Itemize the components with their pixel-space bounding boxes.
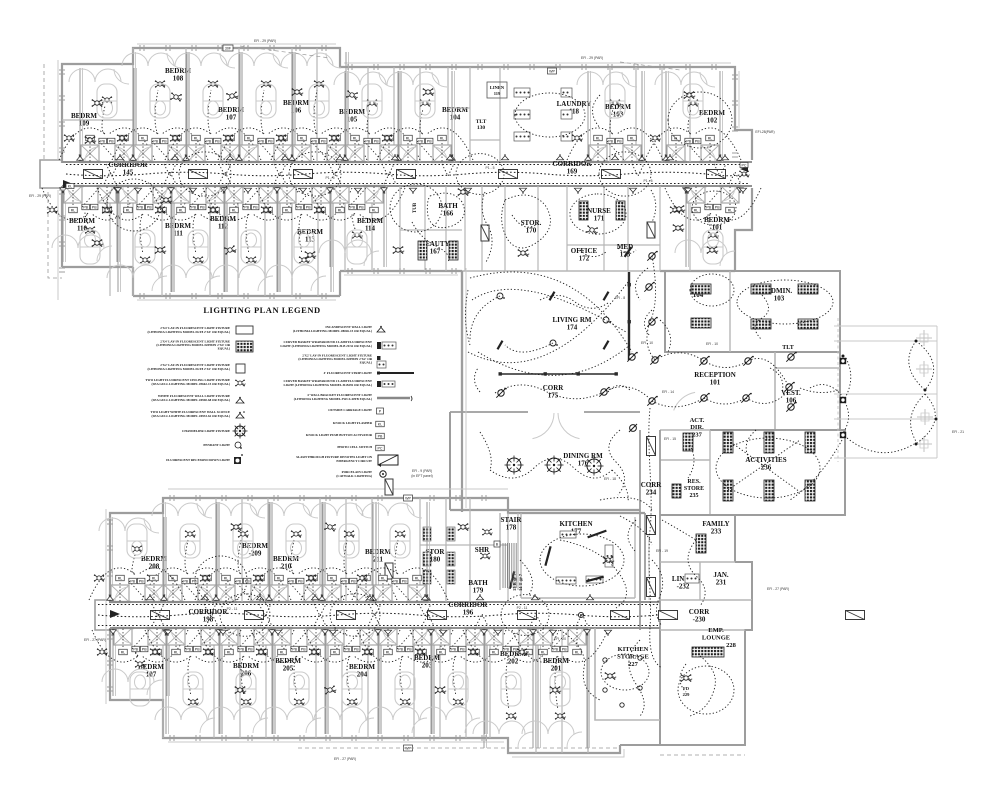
svg-text:PB: PB [183,580,188,584]
svg-text:PB: PB [686,140,691,144]
svg-text:RL: RL [179,209,184,213]
svg-text:PB: PB [460,648,465,652]
svg-text:RL: RL [338,209,343,213]
svg-text:(SEA GULL LIGHTING MODEL #5662: (SEA GULL LIGHTING MODEL #5662-15 OR EQU… [152,382,230,386]
svg-text:PB: PB [345,648,350,652]
svg-text:PB: PB [617,140,622,144]
svg-text:PB: PB [259,140,264,144]
svg-text:PB: PB [83,206,88,210]
svg-text:PB: PB [298,580,303,584]
svg-text:110: 110 [77,224,88,232]
svg-text:102: 102 [707,116,718,124]
svg-text:PB: PB [342,580,347,584]
svg-text:LOUNGE: LOUNGE [702,635,730,642]
svg-text:PB: PB [562,648,567,652]
svg-text:LINEN: LINEN [490,85,505,90]
svg-text:(in EFT panel): (in EFT panel) [411,474,432,478]
svg-text:PB: PB [292,648,297,652]
svg-text:PB: PB [301,648,306,652]
svg-text:EQUAL): EQUAL) [360,361,372,365]
svg-text:14 T @ 7: 14 T @ 7 [518,573,523,591]
svg-text:15 R @ 7: 15 R @ 7 [512,573,517,591]
svg-text:KL: KL [68,185,72,189]
svg-text:P2 - 11: P2 - 11 [227,607,238,611]
svg-text:RL: RL [121,651,126,655]
svg-text:CHANDELIER LIGHT FIXTURE: CHANDELIER LIGHT FIXTURE [182,429,230,433]
svg-text:108: 108 [173,74,184,82]
svg-text:P2 - 11: P2 - 11 [517,606,528,610]
svg-text:PB: PB [248,648,253,652]
svg-text:WP: WP [405,497,411,501]
svg-text:ACT.: ACT. [690,417,705,424]
svg-text:PB: PB [393,580,398,584]
svg-text:PB: PB [236,580,241,584]
svg-text:PB: PB [92,206,97,210]
svg-text:EFI - 19: EFI - 19 [656,549,668,553]
svg-text:PB: PB [706,206,711,210]
svg-text:PHOTO CELL SWITCH: PHOTO CELL SWITCH [337,445,372,449]
svg-text:PB: PB [186,648,191,652]
svg-text:229: 229 [683,692,691,697]
svg-text:EFI - 29 (PAR): EFI - 29 (PAR) [581,56,603,60]
svg-text:103: 103 [613,110,624,118]
svg-text:-232: -232 [677,582,690,590]
svg-text:PB: PB [354,648,359,652]
svg-text:EFI - 18: EFI - 18 [604,477,616,481]
svg-text:RL: RL [333,651,338,655]
svg-text:PB: PB [142,648,147,652]
svg-text:LIGHTING PLAN LEGEND: LIGHTING PLAN LEGEND [203,305,320,315]
svg-text:FD: FD [683,686,690,691]
svg-text:PB: PB [297,206,302,210]
svg-text:RL: RL [227,651,232,655]
svg-text:RL: RL [440,137,445,141]
svg-text:PB: PB [245,580,250,584]
svg-text:167: 167 [430,247,441,255]
svg-text:PENDANT LIGHT: PENDANT LIGHT [203,443,230,447]
svg-text:PB: PB [553,648,558,652]
svg-text:KL: KL [378,423,382,427]
svg-text:PB: PB [312,140,317,144]
svg-text:PB: PB [244,206,249,210]
svg-text:PB: PB [147,206,152,210]
svg-text:PB: PB [289,580,294,584]
svg-text:FLUORESCENT RECESSED DOWN LIGH: FLUORESCENT RECESSED DOWN LIGHT [166,458,231,462]
svg-text:210: 210 [281,562,292,570]
svg-text:(LITHONIA LIGHTING MODEL #8026: (LITHONIA LIGHTING MODEL #8026-15 OR EQU… [293,329,372,333]
svg-text:103: 103 [774,294,785,302]
svg-text:PB: PB [398,648,403,652]
svg-text:171: 171 [594,214,605,222]
svg-text:RL: RL [728,209,733,213]
svg-text:4' FLUORESCENT STRIP LIGHT: 4' FLUORESCENT STRIP LIGHT [324,371,373,375]
svg-text:RL: RL [330,577,335,581]
svg-text:PB: PB [138,206,143,210]
svg-text:201: 201 [551,664,562,672]
svg-text:(LITHONIA LIGHTING MODEL #WC4-: (LITHONIA LIGHTING MODEL #WC4-40TB EQUAL… [294,397,372,401]
svg-text:196: 196 [463,608,474,616]
svg-text:RL: RL [630,137,635,141]
svg-text:(SEA GULL LIGHTING MODEL #4940: (SEA GULL LIGHTING MODEL #4940-68 OR EQU… [152,398,230,402]
svg-text:PB: PB [427,140,432,144]
svg-text:RL: RL [152,577,157,581]
svg-text:RL: RL [224,577,229,581]
svg-text:RL: RL [372,209,377,213]
svg-text:RL: RL [300,137,305,141]
svg-text:RL: RL [118,577,123,581]
svg-text:PB: PB [153,140,158,144]
svg-text:(LITHONIA LIGHTING MODEL #GT8: (LITHONIA LIGHTING MODEL #GT8 2'X2' OR E… [147,367,230,371]
svg-text:174: 174 [567,323,578,331]
svg-text:P1 - 5: P1 - 5 [325,176,334,180]
svg-text:RL: RL [386,651,391,655]
svg-text:PB: PB [253,206,258,210]
svg-text:130: 130 [477,125,486,131]
svg-text:RL: RL [415,577,420,581]
svg-text:(LITHONIA LIGHTING MODEL #GT8: (LITHONIA LIGHTING MODEL #GT8 2'X4' OR E… [147,330,230,334]
svg-text:LIGHT (LITHONIA LIGHTING MODEL: LIGHT (LITHONIA LIGHTING MODEL #LB292 OR… [284,383,373,387]
svg-text:PB: PB [350,206,355,210]
svg-text:PB: PB [374,140,379,144]
svg-text:EFI - 27 (PAR): EFI - 27 (PAR) [767,587,789,591]
svg-text:175: 175 [548,391,559,399]
svg-text:PB: PB [451,648,456,652]
svg-text:EFI - 15: EFI - 15 [664,437,676,441]
svg-text:EFI - 20: EFI - 20 [554,637,566,641]
svg-text:235: 235 [690,493,699,499]
svg-text:PB: PB [321,140,326,144]
svg-text:EFI - 27 (PAR): EFI - 27 (PAR) [84,638,106,642]
svg-text:RL: RL [285,209,290,213]
svg-text:PB: PB [162,140,167,144]
svg-text:RL: RL [232,209,237,213]
svg-text:180: 180 [430,555,441,563]
svg-text:PB: PB [191,206,196,210]
svg-text:101: 101 [710,378,721,386]
svg-text:RES.: RES. [687,479,701,485]
svg-text:EFI - 10: EFI - 10 [706,342,718,346]
svg-text:208: 208 [149,562,160,570]
svg-text:(SEA GULL LIGHTING MODEL #4933: (SEA GULL LIGHTING MODEL #4933-62 OR EQU… [152,414,230,418]
svg-text:WP: WP [405,747,411,751]
svg-text:EQUAL): EQUAL) [218,347,230,351]
svg-text:170: 170 [526,226,537,234]
svg-text:RL: RL [708,137,713,141]
svg-text:KNOCK LIGHT FLASHER: KNOCK LIGHT FLASHER [333,421,373,425]
svg-text:RL: RL [406,137,411,141]
svg-text:233: 233 [711,527,722,535]
svg-text:228: 228 [726,642,737,649]
svg-text:RL: RL [439,651,444,655]
svg-text:TUB: TUB [413,202,418,213]
svg-text:227: 227 [628,661,639,668]
svg-text:30F: 30F [225,47,232,51]
svg-text:EFI - 14: EFI - 14 [662,390,674,394]
svg-text:RL: RL [247,137,252,141]
svg-text:PB: PB [418,140,423,144]
svg-text:RL: RL [596,137,601,141]
svg-text:RL: RL [381,577,386,581]
svg-text:PB: PB [109,140,114,144]
svg-text:PB: PB [200,206,205,210]
svg-text:PB: PB [239,648,244,652]
svg-text:PB: PB [608,140,613,144]
svg-text:KNOCK LIGHT PUSH BUTTON ACTIVA: KNOCK LIGHT PUSH BUTTON ACTIVATOR [306,433,373,437]
svg-text:P1 - 5: P1 - 5 [643,179,652,183]
svg-text:104: 104 [450,113,461,121]
svg-text:RL: RL [541,651,546,655]
svg-text:OUTSIDE CARRIAGE LIGHT: OUTSIDE CARRIAGE LIGHT [328,408,373,412]
svg-text:PB: PB [306,206,311,210]
svg-text:PC: PC [742,164,747,168]
svg-text:119: 119 [494,91,501,96]
svg-text:RL: RL [353,137,358,141]
svg-text:EFI - 9 (PAR): EFI - 9 (PAR) [412,469,432,473]
svg-text:205: 205 [283,664,294,672]
svg-text:107: 107 [226,113,237,121]
svg-text:EFI - 29 (PAR): EFI - 29 (PAR) [254,39,276,43]
svg-text:EMERGENCY CIRCUIT: EMERGENCY CIRCUIT [336,459,372,463]
svg-text:178: 178 [506,523,517,531]
svg-text:RL: RL [575,651,580,655]
svg-text:169: 169 [567,167,578,175]
svg-text:RL: RL [71,209,76,213]
svg-text:LIGHT (LITHONIA LIGHTING MODEL: LIGHT (LITHONIA LIGHTING MODEL #LB 2U32 … [280,344,372,348]
svg-text:DIR.: DIR. [690,424,704,431]
svg-text:RL: RL [280,651,285,655]
svg-text:RL: RL [492,651,497,655]
svg-text:237: 237 [692,432,703,439]
svg-text:EMP.: EMP. [708,627,724,634]
svg-text:TLT: TLT [782,345,793,351]
svg-text:EFI-28(PAR): EFI-28(PAR) [755,130,774,134]
svg-text:EFI - 21: EFI - 21 [952,430,964,434]
svg-text:179: 179 [473,586,484,594]
svg-text:PB: PB [130,580,135,584]
svg-text:PB: PB [192,580,197,584]
svg-text:RL: RL [277,577,282,581]
svg-text:PB: PB [715,206,720,210]
svg-text:PC: PC [378,447,383,451]
svg-text:(CATWALK LIGHTING): (CATWALK LIGHTING) [336,474,372,478]
svg-text:PB: PB [407,648,412,652]
svg-text:166: 166 [443,209,454,217]
svg-text:PB: PB [268,140,273,144]
svg-text:PB: PB [100,140,105,144]
svg-text:EFI - 8: EFI - 8 [615,296,625,300]
svg-text:PB: PB [195,648,200,652]
svg-text:KITCHEN: KITCHEN [618,646,649,653]
svg-text:114: 114 [365,224,376,232]
svg-text:PB: PB [206,140,211,144]
svg-text:PB: PB [359,206,364,210]
svg-text:EFI - 10: EFI - 10 [641,341,653,345]
svg-text:PB: PB [378,435,383,439]
svg-text:172: 172 [579,254,590,262]
svg-text:STORE: STORE [684,486,704,492]
svg-text:RL: RL [141,137,146,141]
svg-text:RL: RL [174,651,179,655]
svg-text:WP: WP [549,70,555,74]
svg-text:PB: PB [215,140,220,144]
svg-text:RL: RL [126,209,131,213]
svg-text:PB: PB [351,580,356,584]
svg-text:RL: RL [194,137,199,141]
svg-text:PB: PB [402,580,407,584]
svg-text:204: 204 [357,670,368,678]
svg-text:RL: RL [694,209,699,213]
svg-text:EFI - 27 (PAR): EFI - 27 (PAR) [334,757,356,761]
svg-text:PB: PB [504,648,509,652]
svg-text:PB: PB [695,140,700,144]
svg-text:PB: PB [133,648,138,652]
svg-text:231: 231 [716,578,727,586]
svg-text:PB: PB [365,140,370,144]
svg-text:-230: -230 [693,615,706,623]
svg-text:PB: PB [139,580,144,584]
svg-text:P1 - 5: P1 - 5 [485,166,494,170]
